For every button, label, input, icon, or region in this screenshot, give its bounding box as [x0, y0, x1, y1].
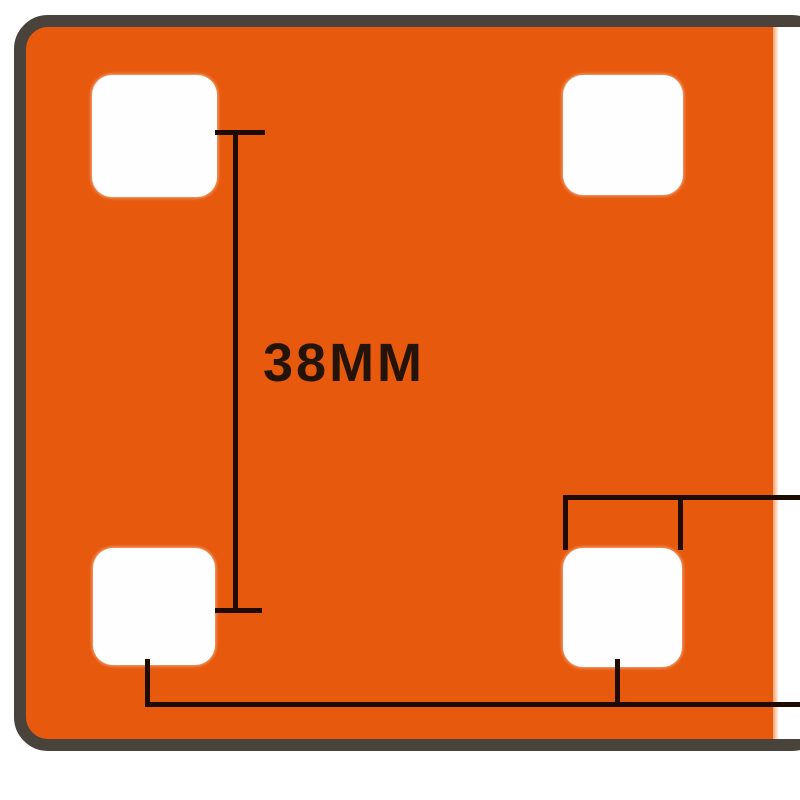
- dim-bottom-spacing-leader-line: [145, 702, 800, 707]
- dim-bottom-spacing-left-drop: [145, 659, 150, 707]
- dim-38mm-top-tick: [215, 130, 265, 135]
- hole-top-left: [92, 75, 217, 197]
- dim-38mm-label: 38MM: [263, 336, 425, 390]
- hole-bottom-right: [563, 548, 682, 667]
- hole-bottom-left: [93, 548, 215, 665]
- dim-hole-width-left-tick: [563, 495, 568, 550]
- background-gap-strip: [773, 27, 800, 739]
- dim-38mm-bottom-tick: [215, 608, 262, 613]
- dim-38mm-vertical-line: [233, 130, 238, 613]
- dim-bottom-spacing-right-drop: [615, 659, 620, 707]
- dimension-diagram: 38MM: [0, 0, 800, 800]
- hole-top-right: [563, 75, 683, 195]
- dim-hole-width-right-tick: [678, 495, 683, 550]
